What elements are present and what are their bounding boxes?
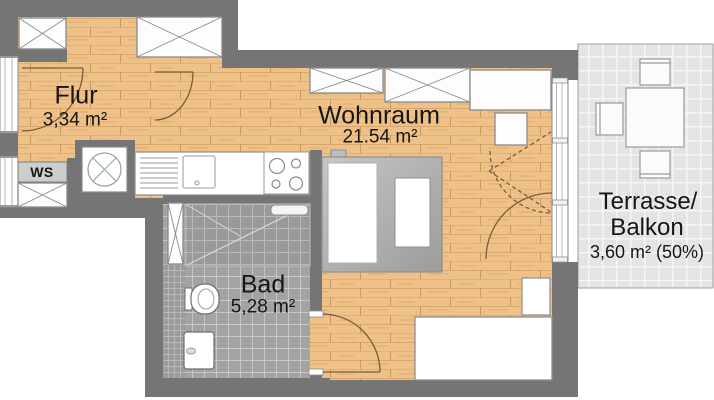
- wall-left-mid: [0, 133, 18, 157]
- bad-room-name: Bad: [241, 273, 285, 298]
- wohnraum-room-name: Wohnraum: [318, 104, 440, 129]
- bad-door-post-bottom: [309, 369, 323, 375]
- flur-room-name: Flur: [54, 84, 97, 109]
- wall-ws-niche: [67, 158, 79, 207]
- wall-top-left: [0, 0, 238, 17]
- bad-door-post-top: [309, 311, 323, 317]
- terrasse-area: 3,60 m² (50%): [590, 243, 704, 261]
- entrance-door-opening: [0, 56, 18, 133]
- bad-floor-border-tiles: [163, 264, 185, 378]
- wall-bottom: [312, 380, 578, 397]
- balcony-window: [552, 78, 568, 262]
- nightstand: [495, 113, 527, 145]
- side-table: [522, 278, 550, 315]
- bed-mattress: [328, 163, 377, 263]
- wall-bad-bottom: [145, 378, 330, 397]
- stove: [264, 152, 309, 194]
- floorplan: Flur 3,34 m² Wohnraum 21.54 m² Bad 5,28 …: [0, 0, 714, 400]
- cabinet-wohnraum: [470, 70, 551, 110]
- dish-drainer: [140, 158, 178, 188]
- kitchen: [135, 152, 310, 195]
- bad-room-area: 5,28 m²: [231, 298, 295, 317]
- ws-label: WS: [30, 165, 54, 179]
- wall-left-upper: [0, 17, 18, 57]
- left-window: [0, 156, 18, 207]
- washing-machine: [82, 147, 127, 192]
- wall-wohnraum-top: [238, 50, 552, 68]
- wall-right-lower: [552, 262, 578, 397]
- shower: [186, 204, 310, 266]
- couch: [415, 317, 552, 380]
- wohnraum-room-area: 21.54 m²: [343, 128, 418, 147]
- wall-bad-right-upper: [310, 150, 322, 317]
- shower-fixture: [271, 205, 308, 215]
- wall-bad-top: [163, 195, 310, 204]
- toilet: [185, 284, 219, 314]
- terrasse-name-line2: Balkon: [610, 216, 683, 240]
- bath-sink: [184, 332, 214, 369]
- kitchen-sink: [183, 156, 215, 188]
- terrasse-name-line1: Terrasse/: [599, 190, 698, 214]
- bed-table: [395, 178, 430, 247]
- bed: [322, 150, 442, 272]
- wall-under-closet: [18, 49, 67, 62]
- wall-right-corner: [552, 50, 578, 80]
- wall-bad-left: [145, 215, 163, 380]
- terrace-table: [626, 88, 684, 147]
- wall-flur-wohnraum: [222, 0, 238, 68]
- flur-room-area: 3,34 m²: [43, 111, 107, 130]
